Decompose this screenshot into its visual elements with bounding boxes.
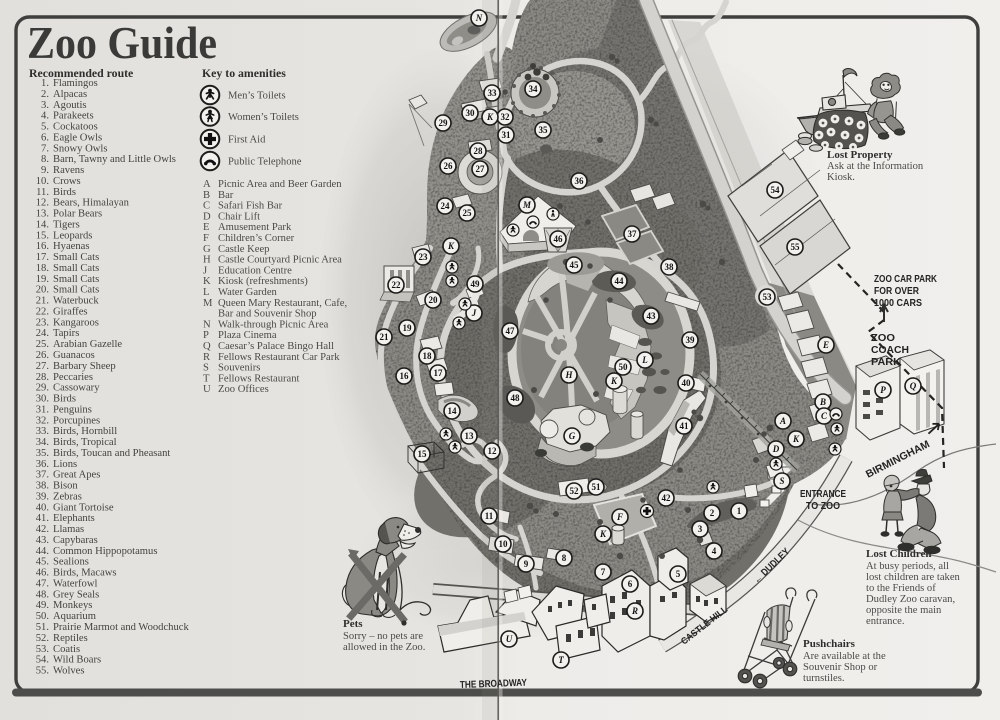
- svg-text:11: 11: [485, 511, 494, 521]
- svg-text:52: 52: [570, 486, 580, 496]
- svg-text:31.Penguins: 31.Penguins: [36, 404, 92, 415]
- svg-text:26.Guanacos: 26.Guanacos: [36, 350, 95, 361]
- svg-text:B: B: [819, 397, 826, 407]
- svg-text:29.Cassowary: 29.Cassowary: [36, 383, 100, 394]
- svg-text:S: S: [779, 476, 784, 486]
- svg-text:lost children are taken: lost children are taken: [866, 572, 961, 583]
- svg-text:THE BROADWAY: THE BROADWAY: [460, 678, 528, 691]
- svg-text:U: U: [506, 634, 513, 644]
- svg-text:RFellows Restaurant Car Park: RFellows Restaurant Car Park: [203, 352, 340, 363]
- svg-text:15.Leopards: 15.Leopards: [36, 230, 93, 241]
- svg-text:30: 30: [466, 108, 476, 118]
- svg-text:turnstiles.: turnstiles.: [803, 673, 845, 684]
- svg-text:to the Friends of: to the Friends of: [866, 583, 936, 594]
- svg-text:45: 45: [570, 260, 580, 270]
- svg-text:28: 28: [474, 146, 484, 156]
- svg-text:54.Wild Boars: 54.Wild Boars: [36, 655, 101, 666]
- svg-text:47.Waterfowl: 47.Waterfowl: [36, 579, 98, 590]
- svg-text:COACH: COACH: [871, 344, 909, 356]
- svg-text:38.Bison: 38.Bison: [36, 481, 79, 492]
- svg-text:M: M: [522, 200, 532, 210]
- svg-text:10: 10: [499, 539, 509, 549]
- svg-text:27: 27: [476, 164, 486, 174]
- svg-text:K: K: [599, 529, 607, 539]
- svg-text:E: E: [822, 340, 829, 350]
- svg-text:40.Giant Tortoise: 40.Giant Tortoise: [36, 502, 114, 513]
- svg-text:PARK: PARK: [871, 356, 901, 368]
- svg-text:FOR OVER: FOR OVER: [874, 285, 919, 297]
- svg-text:7: 7: [601, 567, 606, 577]
- svg-text:20: 20: [429, 295, 439, 305]
- svg-text:At busy periods, all: At busy periods, all: [866, 561, 949, 572]
- svg-text:Women’s Toilets: Women’s Toilets: [228, 112, 299, 123]
- svg-text:MQueen Mary Restaurant, Cafe,: MQueen Mary Restaurant, Cafe,: [203, 298, 347, 309]
- svg-text:ZOO: ZOO: [871, 332, 895, 344]
- svg-text:opposite the main: opposite the main: [866, 605, 942, 616]
- svg-text:45.Sealions: 45.Sealions: [36, 557, 89, 568]
- svg-text:27.Barbary Sheep: 27.Barbary Sheep: [36, 361, 116, 372]
- svg-text:32: 32: [501, 112, 511, 122]
- svg-text:43.Capybaras: 43.Capybaras: [36, 535, 98, 546]
- svg-text:H: H: [564, 370, 573, 380]
- svg-text:53: 53: [763, 292, 773, 302]
- svg-text:37.Great Apes: 37.Great Apes: [36, 470, 101, 481]
- svg-text:5: 5: [676, 569, 681, 579]
- svg-text:First Aid: First Aid: [228, 135, 266, 146]
- svg-text:28.Peccaries: 28.Peccaries: [36, 372, 93, 383]
- svg-text:ZOO CAR PARK: ZOO CAR PARK: [874, 273, 937, 285]
- svg-text:52.Reptiles: 52.Reptiles: [36, 633, 88, 644]
- svg-text:Sorry – no pets are: Sorry – no pets are: [343, 631, 423, 642]
- svg-text:4: 4: [712, 546, 717, 556]
- svg-text:Key to amenities: Key to amenities: [202, 66, 286, 80]
- svg-text:54: 54: [771, 185, 781, 195]
- svg-text:22: 22: [392, 280, 402, 290]
- svg-text:37: 37: [628, 229, 638, 239]
- svg-text:P: P: [880, 385, 886, 395]
- svg-text:23.Kangaroos: 23.Kangaroos: [36, 317, 99, 328]
- svg-text:43: 43: [647, 311, 657, 321]
- svg-text:G: G: [569, 431, 576, 441]
- svg-text:47: 47: [506, 326, 516, 336]
- svg-text:26: 26: [444, 161, 454, 171]
- svg-text:2.Alpacas: 2.Alpacas: [41, 89, 87, 100]
- svg-text:51: 51: [592, 482, 602, 492]
- svg-text:3.Agoutis: 3.Agoutis: [41, 100, 87, 111]
- svg-text:APicnic Area and Beer Garden: APicnic Area and Beer Garden: [203, 179, 342, 190]
- svg-text:33.Birds, Hornbill: 33.Birds, Hornbill: [36, 426, 117, 437]
- svg-text:10.Crows: 10.Crows: [36, 176, 81, 187]
- svg-text:46: 46: [554, 234, 564, 244]
- svg-text:BBar: BBar: [203, 190, 234, 201]
- svg-text:14: 14: [448, 406, 458, 416]
- svg-text:Dudley Zoo caravan,: Dudley Zoo caravan,: [866, 594, 955, 605]
- svg-text:Lost Property: Lost Property: [827, 149, 893, 161]
- svg-text:17: 17: [434, 368, 444, 378]
- svg-text:33: 33: [488, 88, 498, 98]
- svg-text:Q: Q: [910, 381, 917, 391]
- svg-text:1000 CARS: 1000 CARS: [874, 297, 922, 309]
- svg-text:16: 16: [400, 371, 410, 381]
- svg-text:55.Wolves: 55.Wolves: [36, 666, 85, 677]
- svg-text:25: 25: [463, 208, 473, 218]
- svg-text:40: 40: [682, 378, 692, 388]
- svg-text:30.Birds: 30.Birds: [36, 394, 76, 405]
- svg-text:NWalk-through Picnic Area: NWalk-through Picnic Area: [203, 319, 329, 330]
- svg-text:21.Waterbuck: 21.Waterbuck: [36, 296, 100, 307]
- svg-text:Men’s Toilets: Men’s Toilets: [228, 91, 286, 102]
- svg-text:Lost Children: Lost Children: [866, 548, 932, 560]
- svg-text:Kiosk.: Kiosk.: [827, 172, 855, 183]
- svg-text:19.Small Cats: 19.Small Cats: [36, 274, 99, 285]
- svg-text:TFellows Restaurant: TFellows Restaurant: [203, 373, 300, 384]
- svg-text:K: K: [447, 241, 455, 251]
- svg-text:13.Polar Bears: 13.Polar Bears: [36, 209, 102, 220]
- svg-text:16.Hyaenas: 16.Hyaenas: [36, 241, 90, 252]
- svg-text:14.Tigers: 14.Tigers: [36, 219, 80, 230]
- svg-text:3: 3: [698, 524, 703, 534]
- svg-text:22.Giraffes: 22.Giraffes: [36, 307, 88, 318]
- svg-text:Public Telephone: Public Telephone: [228, 157, 302, 168]
- svg-text:6: 6: [628, 579, 633, 589]
- svg-text:8.Barn, Tawny and Little Owls: 8.Barn, Tawny and Little Owls: [41, 154, 176, 165]
- svg-text:19: 19: [403, 323, 413, 333]
- svg-text:R: R: [631, 606, 638, 616]
- svg-text:34.Birds, Tropical: 34.Birds, Tropical: [36, 437, 117, 448]
- svg-text:11.Birds: 11.Birds: [36, 187, 76, 198]
- svg-text:44.Common Hippopotamus: 44.Common Hippopotamus: [36, 546, 158, 557]
- svg-text:9.Ravens: 9.Ravens: [41, 165, 84, 176]
- svg-text:4.Parakeets: 4.Parakeets: [41, 111, 94, 122]
- svg-text:K: K: [610, 376, 618, 386]
- svg-text:36.Lions: 36.Lions: [36, 459, 77, 470]
- svg-text:K: K: [486, 112, 494, 122]
- svg-text:21: 21: [380, 332, 390, 342]
- svg-text:TO ZOO: TO ZOO: [806, 501, 840, 512]
- svg-text:Pets: Pets: [343, 618, 363, 630]
- svg-text:F: F: [616, 512, 623, 522]
- svg-text:QCaesar’s Palace Bingo Hall: QCaesar’s Palace Bingo Hall: [203, 341, 334, 352]
- svg-text:A: A: [779, 416, 786, 426]
- svg-text:Souvenir Shop or: Souvenir Shop or: [803, 662, 878, 673]
- svg-text:J: J: [471, 308, 477, 318]
- svg-text:13: 13: [465, 431, 475, 441]
- svg-text:32.Porcupines: 32.Porcupines: [36, 415, 100, 426]
- svg-text:49.Monkeys: 49.Monkeys: [36, 600, 93, 611]
- svg-text:23: 23: [419, 252, 429, 262]
- svg-text:24: 24: [441, 201, 451, 211]
- svg-text:18: 18: [423, 351, 433, 361]
- svg-text:29: 29: [439, 118, 449, 128]
- svg-text:Pushchairs: Pushchairs: [803, 638, 856, 650]
- svg-text:T: T: [558, 655, 564, 665]
- svg-text:HCastle Courtyard Picnic Area: HCastle Courtyard Picnic Area: [203, 255, 342, 266]
- svg-text:L: L: [641, 355, 648, 365]
- svg-text:18.Small Cats: 18.Small Cats: [36, 263, 99, 274]
- svg-text:36: 36: [575, 176, 585, 186]
- svg-text:46.Birds, Macaws: 46.Birds, Macaws: [36, 568, 117, 579]
- svg-text:42: 42: [662, 493, 672, 503]
- svg-text:55: 55: [791, 242, 801, 252]
- svg-text:Are available at the: Are available at the: [803, 651, 886, 662]
- svg-text:38: 38: [665, 262, 675, 272]
- svg-text:39: 39: [686, 335, 696, 345]
- svg-text:N: N: [475, 13, 483, 23]
- svg-text:35.Birds, Toucan and Pheasant: 35.Birds, Toucan and Pheasant: [36, 448, 171, 459]
- svg-text:24.Tapirs: 24.Tapirs: [36, 328, 80, 339]
- svg-text:K: K: [792, 434, 800, 444]
- svg-text:2: 2: [710, 508, 715, 518]
- svg-text:Zoo Guide: Zoo Guide: [27, 17, 217, 68]
- svg-text:C: C: [821, 411, 828, 421]
- svg-text:41.Elephants: 41.Elephants: [36, 513, 95, 524]
- svg-text:50.Aquarium: 50.Aquarium: [36, 611, 97, 622]
- svg-text:31: 31: [502, 130, 512, 140]
- svg-text:Ask at the Information: Ask at the Information: [827, 161, 924, 172]
- svg-text:9: 9: [524, 559, 529, 569]
- svg-text:entrance.: entrance.: [866, 616, 905, 627]
- svg-text:20.Small Cats: 20.Small Cats: [36, 285, 99, 296]
- svg-text:53.Coatis: 53.Coatis: [36, 644, 80, 655]
- svg-text:KKiosk (refreshments): KKiosk (refreshments): [203, 276, 308, 287]
- svg-text:ENTRANCE: ENTRANCE: [800, 489, 846, 500]
- svg-text:42.Llamas: 42.Llamas: [36, 524, 84, 535]
- svg-text:50: 50: [619, 362, 629, 372]
- svg-text:41: 41: [680, 421, 690, 431]
- svg-text:15: 15: [418, 449, 428, 459]
- svg-text:35: 35: [539, 125, 549, 135]
- svg-text:12: 12: [488, 446, 498, 456]
- svg-text:48.Grey Seals: 48.Grey Seals: [36, 589, 99, 600]
- svg-text:Bar and Souvenir Shop: Bar and Souvenir Shop: [218, 309, 317, 320]
- svg-text:D: D: [772, 444, 780, 454]
- svg-text:34: 34: [529, 84, 539, 94]
- svg-text:17.Small Cats: 17.Small Cats: [36, 252, 99, 263]
- svg-text:51.Prairie Marmot and Woodchuc: 51.Prairie Marmot and Woodchuck: [36, 622, 190, 633]
- svg-text:allowed in the Zoo.: allowed in the Zoo.: [343, 642, 425, 653]
- svg-text:44: 44: [615, 276, 625, 286]
- svg-text:48: 48: [511, 393, 521, 403]
- svg-text:8: 8: [562, 553, 567, 563]
- svg-text:25.Arabian Gazelle: 25.Arabian Gazelle: [36, 339, 123, 350]
- svg-text:39.Zebras: 39.Zebras: [36, 491, 82, 502]
- svg-text:1: 1: [737, 506, 742, 516]
- svg-text:49: 49: [471, 279, 481, 289]
